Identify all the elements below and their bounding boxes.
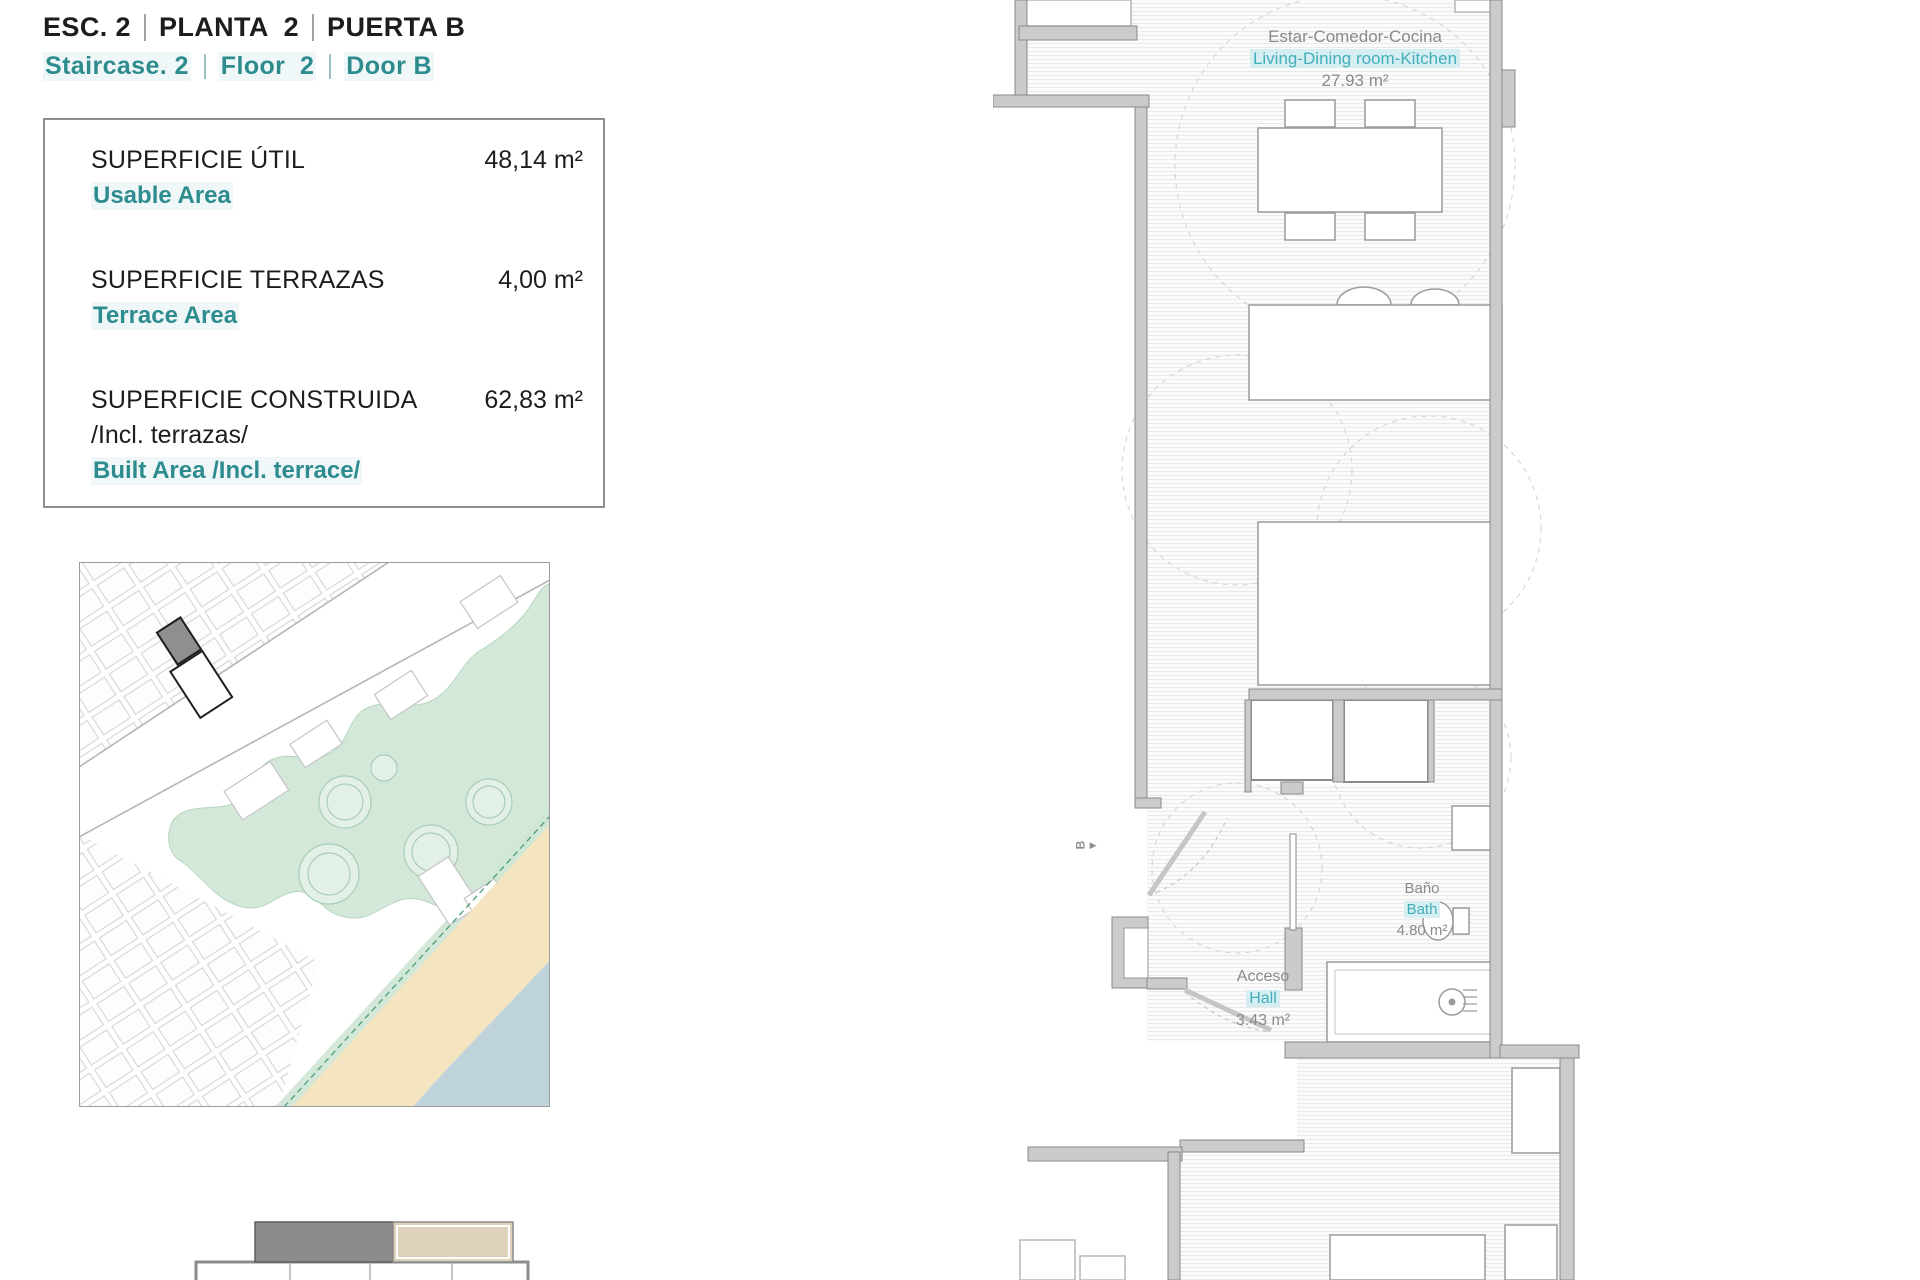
page-title-en: Staircase. 2 Floor 2 Door B	[43, 52, 465, 81]
area-label-es-line2: /Incl. terrazas/	[91, 421, 587, 450]
room-name-es: Baño	[1366, 878, 1478, 899]
wall-notch	[1124, 928, 1148, 978]
area-value: 48,14 m²	[484, 146, 583, 175]
room-area: 3.43 m²	[1198, 1010, 1328, 1032]
terrace	[1023, 0, 1131, 26]
section-marker: B ▶	[1076, 838, 1097, 852]
wardrobe	[1512, 1068, 1560, 1153]
header: ESC. 2 PLANTA 2 PUERTA B Staircase. 2 Fl…	[43, 12, 465, 81]
room-name-es: Estar-Comedor-Cocina	[1248, 26, 1462, 48]
room-label-living: Estar-Comedor-Cocina Living-Dining room-…	[1248, 26, 1462, 92]
core-room-b	[1344, 700, 1428, 782]
plan-sheet: ESC. 2 PLANTA 2 PUERTA B Staircase. 2 Fl…	[0, 0, 1920, 1280]
room-name-en: Hall	[1246, 990, 1280, 1007]
area-label-en: Usable Area	[91, 182, 233, 210]
kitchen-counter	[1258, 522, 1498, 685]
room-name-en: Living-Dining room-Kitchen	[1250, 49, 1460, 68]
room-label-hall: Acceso Hall 3.43 m²	[1198, 966, 1328, 1032]
area-value: 62,83 m²	[484, 386, 583, 415]
building-section-thumbnail	[190, 1215, 570, 1280]
title-es-staircase: ESC. 2	[43, 12, 131, 43]
page-title-es: ESC. 2 PLANTA 2 PUERTA B	[43, 12, 465, 43]
room-name-en: Bath	[1404, 901, 1441, 918]
site-map	[79, 562, 550, 1107]
sliding-door	[1290, 834, 1296, 930]
area-row-terrace: SUPERFICIE TERRAZAS 4,00 m² Terrace Area	[91, 266, 587, 330]
floor-plan-drawing	[993, 0, 1600, 1280]
title-es-door: PUERTA B	[327, 12, 465, 43]
room-area: 27.93 m²	[1248, 70, 1462, 92]
room-area: 4.80 m²	[1366, 920, 1478, 941]
core-room-a	[1251, 700, 1333, 780]
title-en-floor: Floor 2	[219, 52, 316, 81]
section-base	[196, 1262, 528, 1280]
area-row-usable: SUPERFICIE ÚTIL 48,14 m² Usable Area	[91, 146, 587, 210]
room-label-bath: Baño Bath 4.80 m²	[1366, 878, 1478, 941]
bath-cabinet	[1452, 806, 1492, 850]
title-en-staircase: Staircase. 2	[43, 52, 191, 81]
section-block-dark	[255, 1222, 393, 1262]
section-marker-arrow-icon: ▶	[1090, 840, 1097, 851]
dining-table	[1258, 128, 1442, 212]
area-summary-box: SUPERFICIE ÚTIL 48,14 m² Usable Area SUP…	[43, 118, 605, 508]
title-divider	[144, 14, 146, 41]
bed	[1330, 1235, 1485, 1280]
room-name-es: Acceso	[1198, 966, 1328, 988]
section-block-beige	[393, 1222, 513, 1262]
area-value: 4,00 m²	[498, 266, 583, 295]
title-es-floor: PLANTA 2	[159, 12, 299, 43]
area-label-en: Terrace Area	[91, 302, 239, 330]
section-marker-letter: B	[1073, 841, 1087, 850]
title-divider	[204, 54, 206, 79]
title-divider	[329, 54, 331, 79]
title-en-door: Door B	[344, 52, 434, 81]
area-row-built: SUPERFICIE CONSTRUIDA 62,83 m² /Incl. te…	[91, 386, 587, 485]
area-label-en: Built Area /Incl. terrace/	[91, 457, 362, 485]
title-divider	[312, 14, 314, 41]
bathtub	[1327, 962, 1500, 1042]
